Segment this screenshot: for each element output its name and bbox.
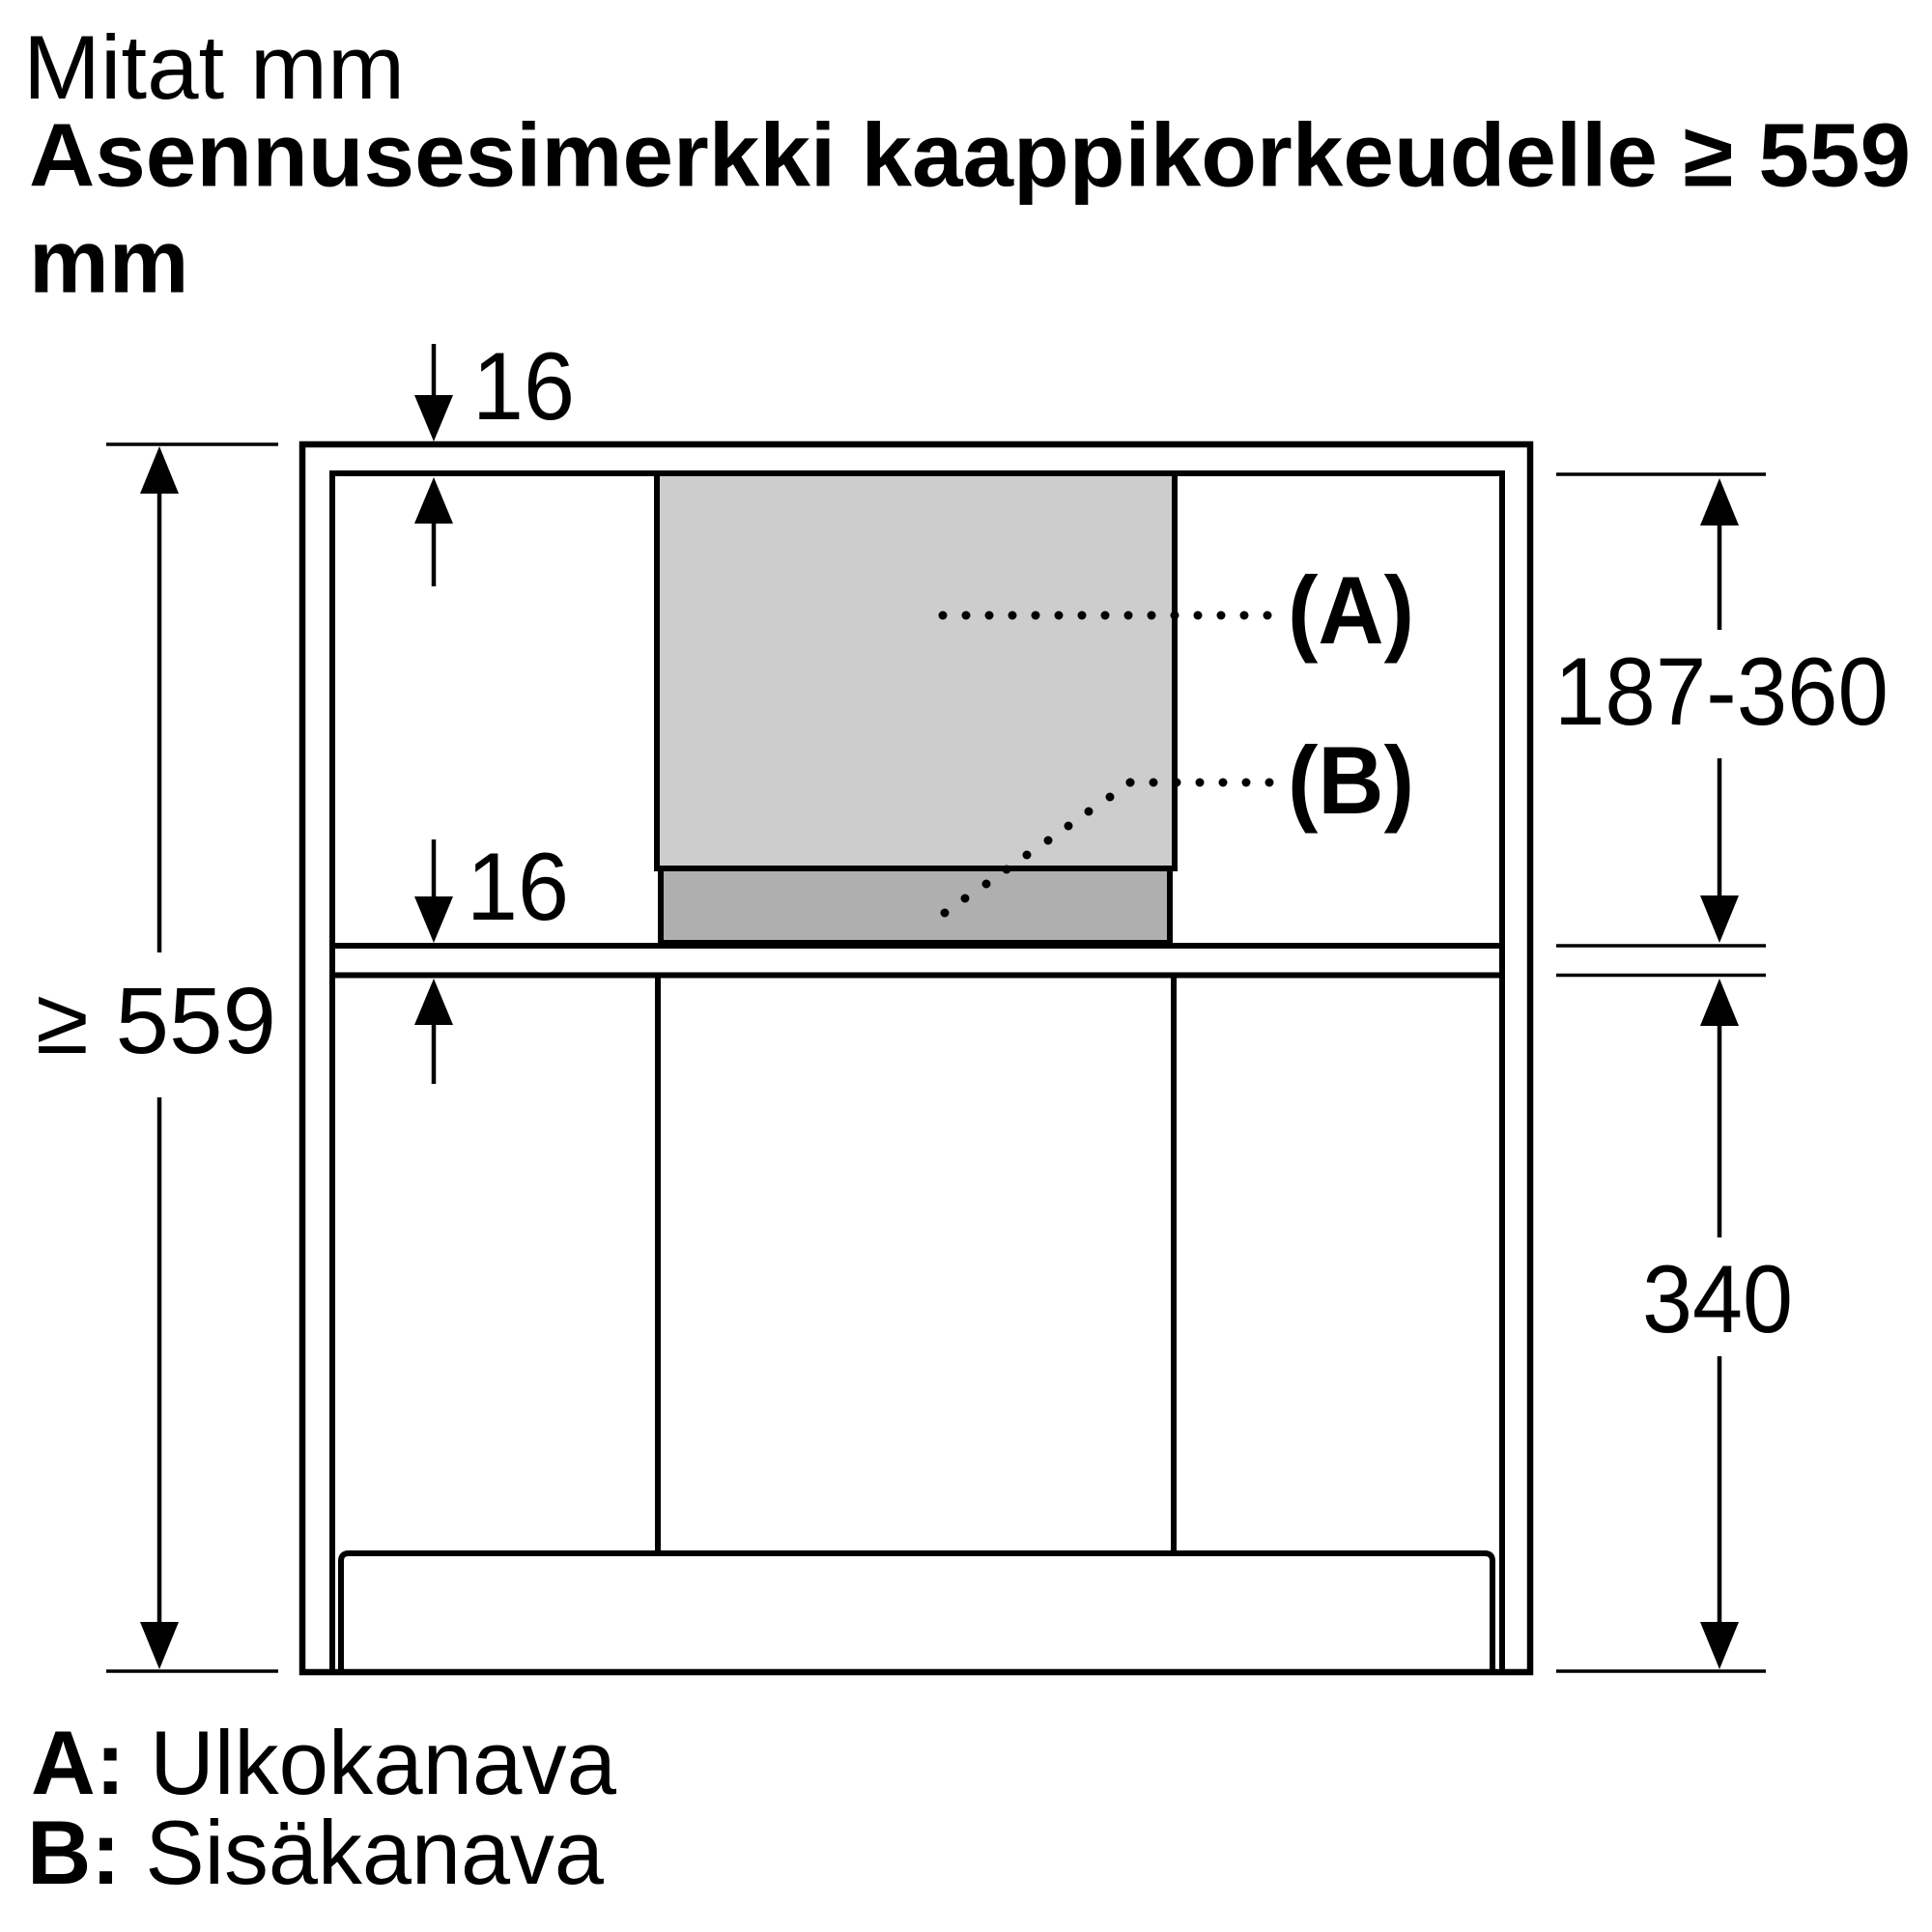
svg-text:mm: mm: [29, 211, 188, 311]
svg-text:187-360: 187-360: [1554, 638, 1889, 745]
svg-text:16: 16: [467, 833, 569, 940]
svg-text:B: Sisäkanava: B: Sisäkanava: [27, 1802, 605, 1903]
svg-text:(A): (A): [1288, 556, 1414, 664]
svg-text:(B): (B): [1288, 726, 1414, 834]
svg-text:≥ 559: ≥ 559: [36, 968, 276, 1073]
svg-text:340: 340: [1642, 1245, 1793, 1352]
svg-text:Mitat mm: Mitat mm: [23, 16, 405, 118]
svg-text:Asennusesimerkki kaappikorkeud: Asennusesimerkki kaappikorkeudelle ≥ 559: [29, 105, 1911, 206]
svg-text:16: 16: [472, 332, 575, 440]
svg-text:A: Ulkokanava: A: Ulkokanava: [31, 1712, 617, 1813]
